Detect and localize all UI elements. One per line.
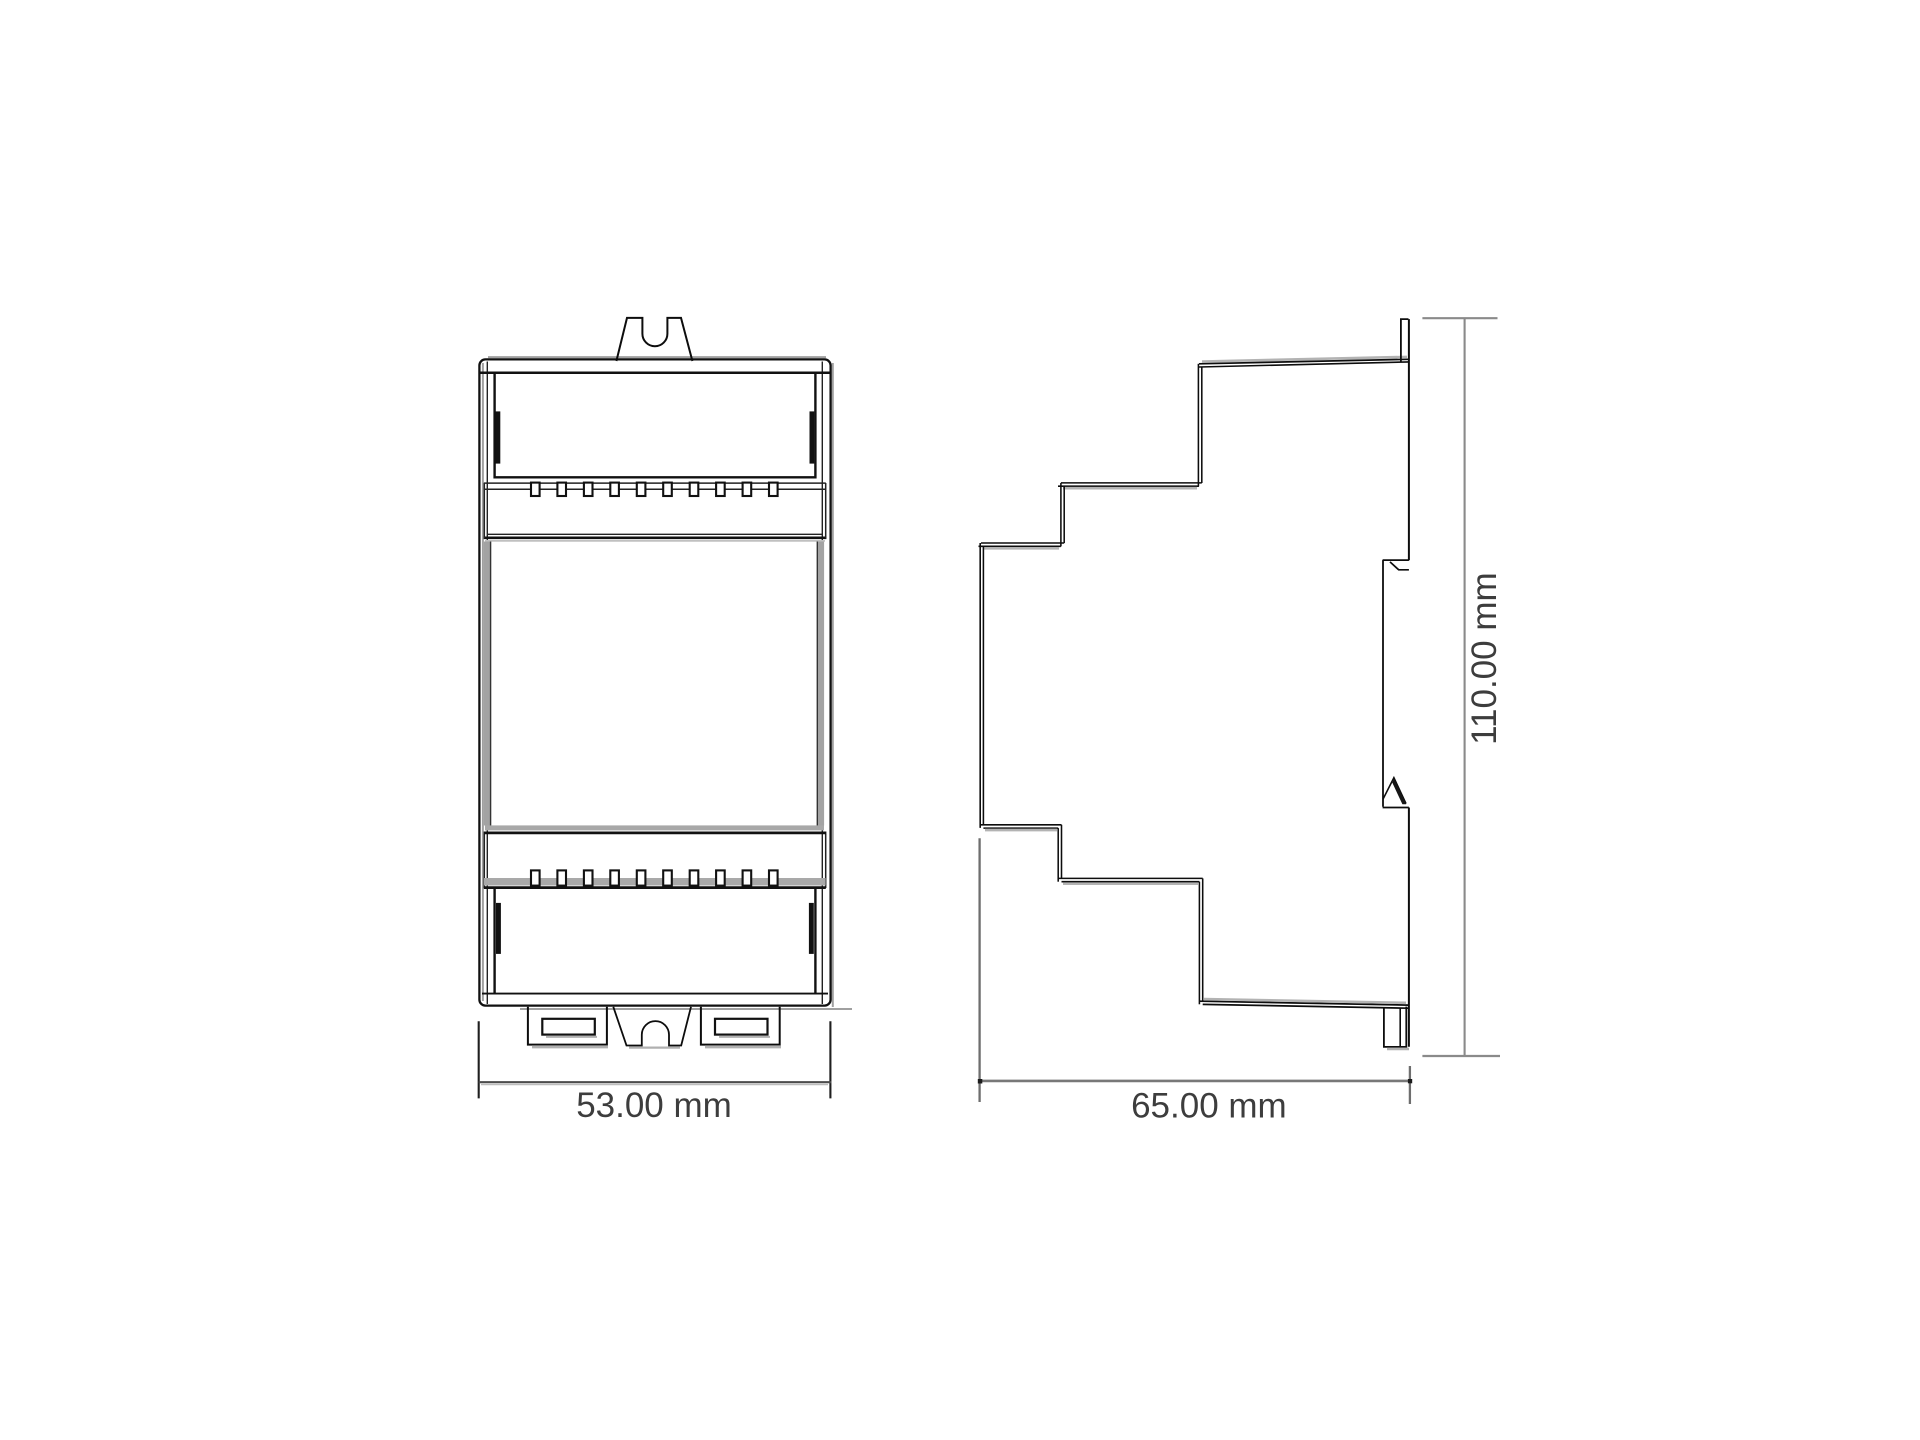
svg-text:65.00 mm: 65.00 mm [1131, 1086, 1287, 1125]
svg-text:110.00 mm: 110.00 mm [1465, 572, 1504, 745]
svg-text:53.00 mm: 53.00 mm [576, 1086, 732, 1125]
